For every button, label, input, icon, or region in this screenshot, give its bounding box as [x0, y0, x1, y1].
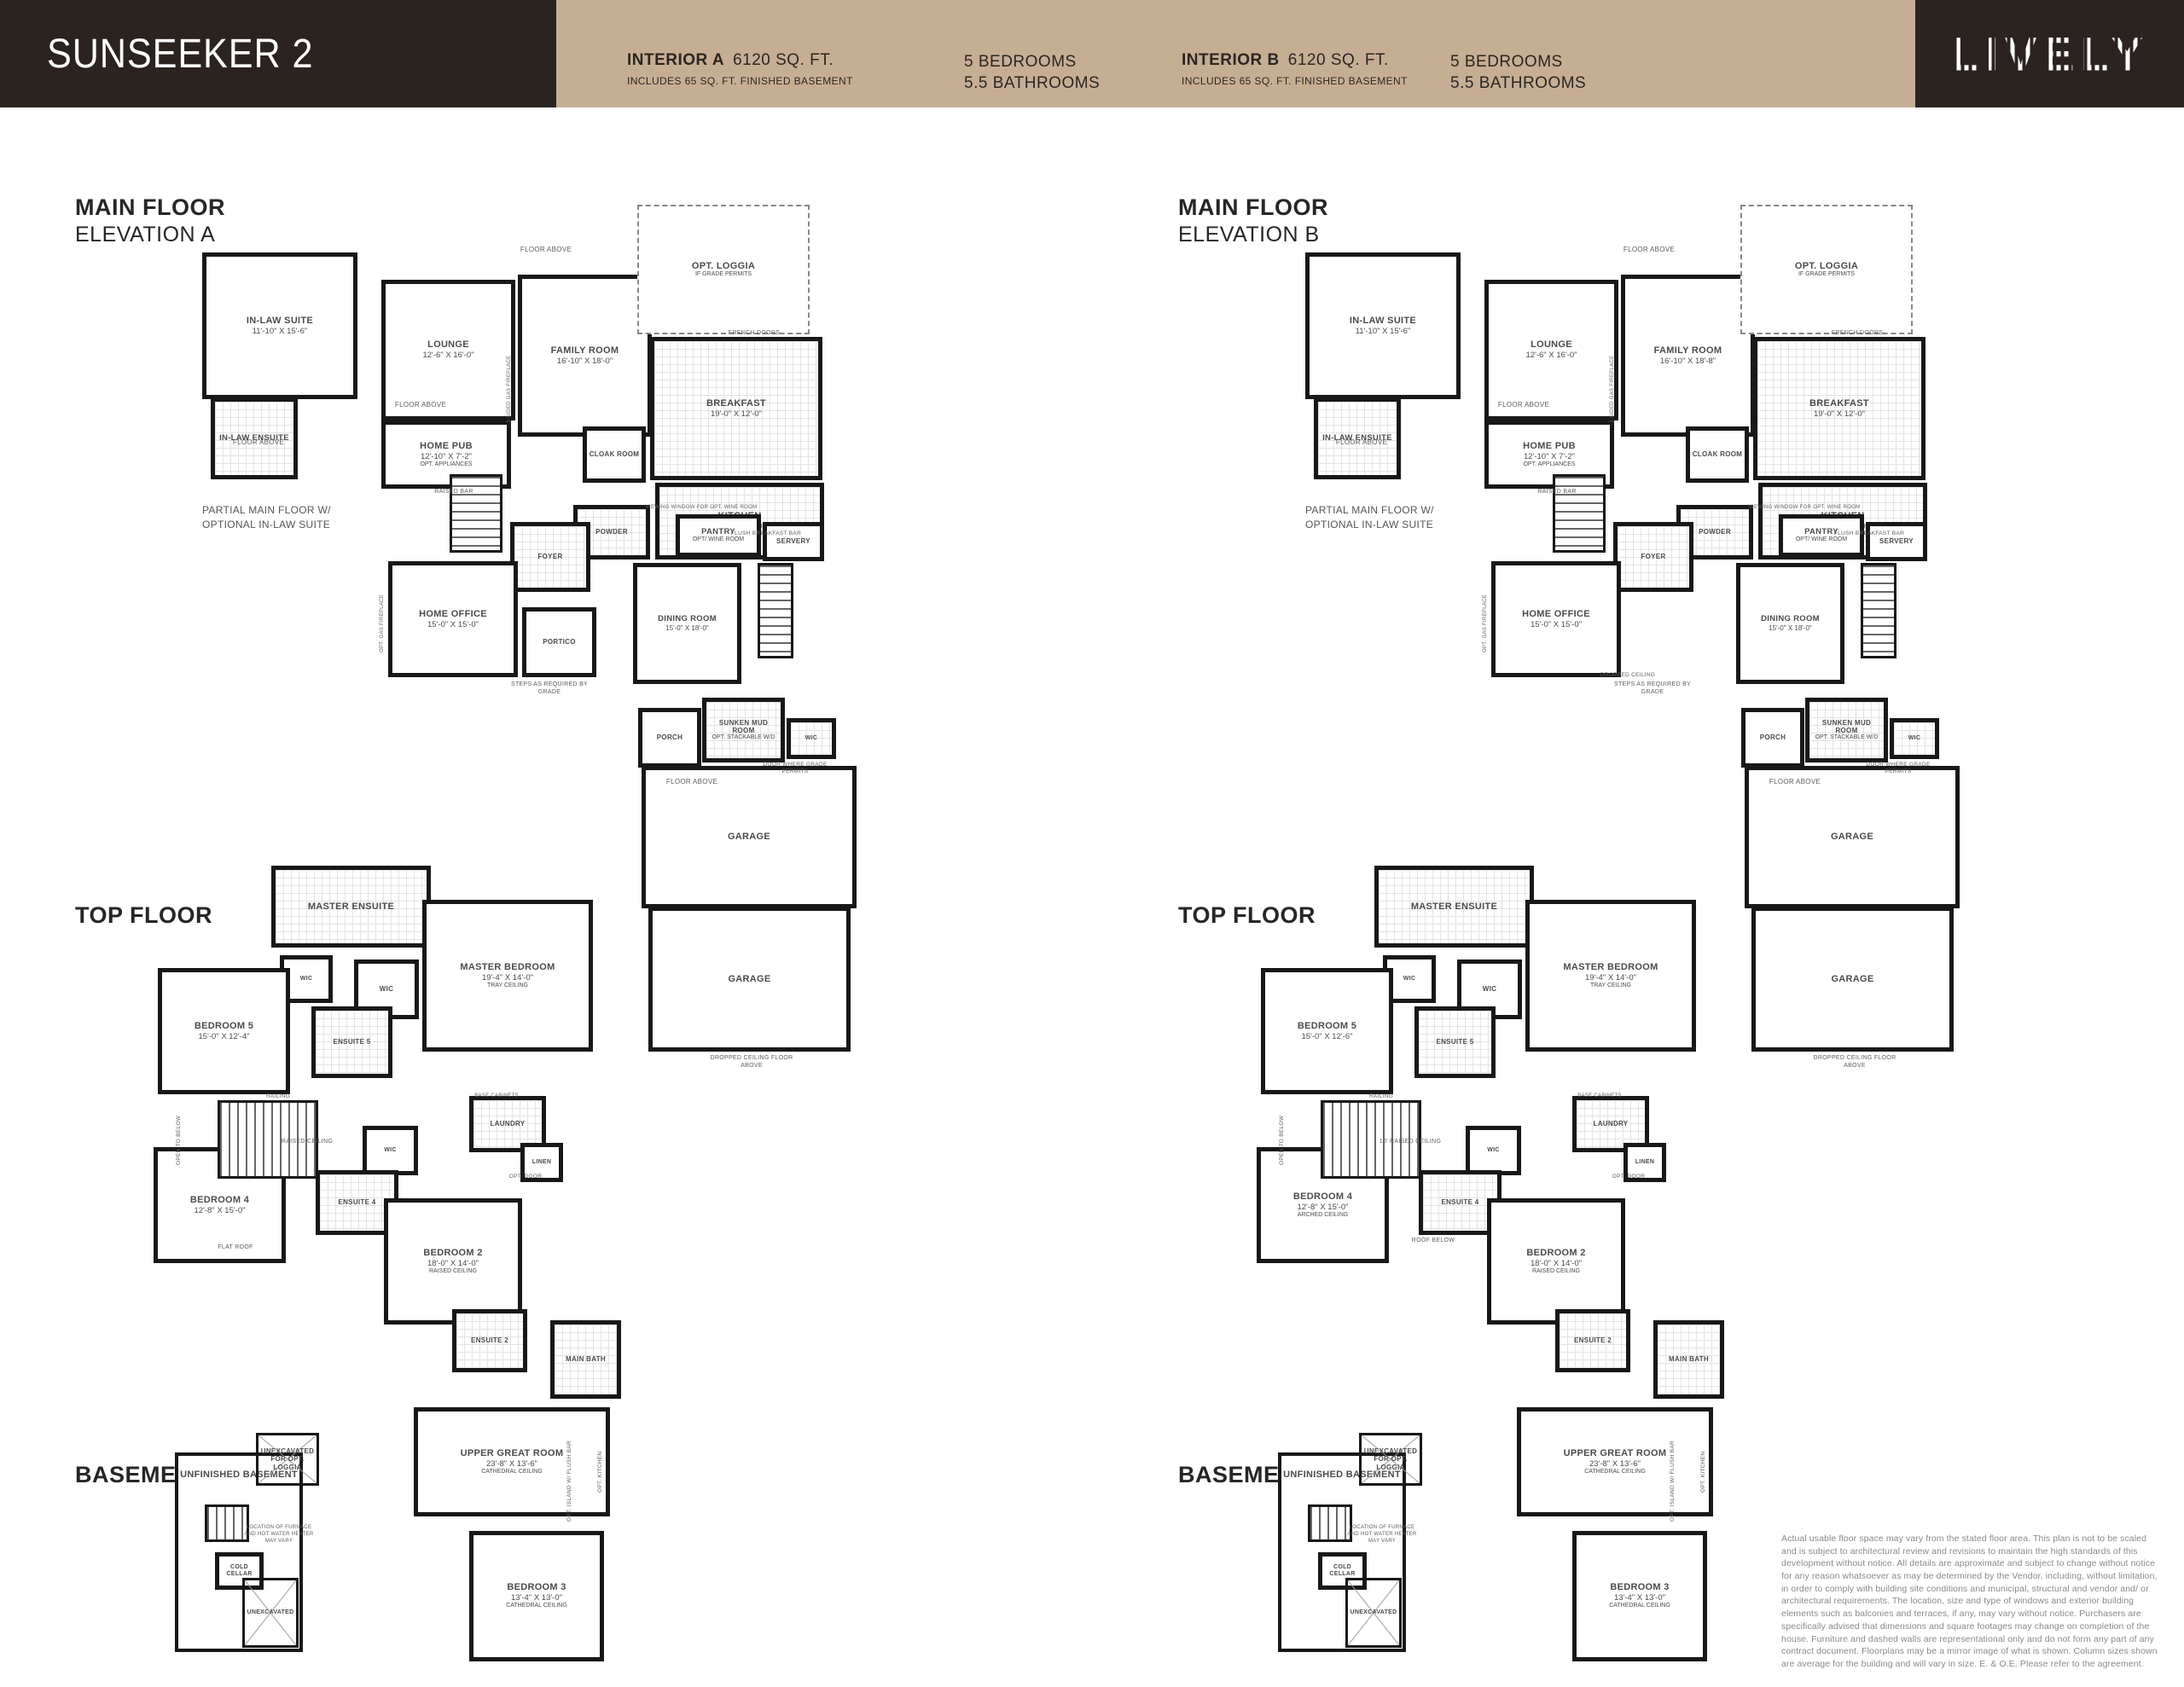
- room-dining: DINING ROOM15'-0" X 18'-0": [633, 563, 741, 684]
- room-bedroom3: BEDROOM 313'-4" X 13'-0"CATHEDRAL CEILIN…: [1572, 1531, 1707, 1661]
- room-label: HOME OFFICE: [419, 609, 487, 620]
- room-label: MAIN BATH: [1669, 1355, 1709, 1363]
- room-label: WIC: [805, 735, 818, 742]
- room-foyer: FOYER: [510, 522, 590, 592]
- room-family-a: FAMILY ROOM16'-10" X 18'-0": [518, 275, 652, 437]
- stairs: [450, 474, 502, 553]
- room-label: LAUNDRY: [491, 1120, 526, 1128]
- note-floor-above: FLOOR ABOVE: [386, 401, 456, 409]
- room-label: 23'-8" X 13'-6": [1589, 1459, 1641, 1469]
- room-label: UPPER GREAT ROOM: [1564, 1448, 1667, 1459]
- room-label: CLOAK ROOM: [1693, 450, 1743, 458]
- room-label: WIC: [380, 985, 393, 993]
- room-label: MASTER ENSUITE: [1411, 901, 1497, 913]
- room-label: HOME PUB: [1523, 441, 1576, 452]
- note-railing: RAILING: [1356, 1093, 1407, 1100]
- room-label: BREAKFAST: [1809, 398, 1869, 409]
- note-viewing: VIEWING WINDOW FOR OPT. WINE ROOM: [1748, 505, 1861, 512]
- room-label: TRAY CEILING: [1590, 983, 1631, 989]
- room-label: MASTER BEDROOM: [1563, 962, 1658, 973]
- room-label: BEDROOM 4: [190, 1195, 249, 1206]
- note-steps: STEPS AS REQUIRED BY GRADE: [502, 681, 597, 696]
- note-base-cabinets: BASE CABINETS: [1569, 1093, 1630, 1100]
- room-label: POWDER: [1699, 528, 1731, 536]
- room-label: RAISED CEILING: [429, 1268, 477, 1275]
- room-label: 23'-8" X 13'-6": [486, 1459, 537, 1469]
- interior-b-sqft: 6120 SQ. FT.: [1288, 51, 1389, 69]
- note-floor-above: FLOOR ABOVE: [224, 438, 293, 447]
- interior-a-label: INTERIOR A: [627, 51, 724, 69]
- partial-caption-a: PARTIAL MAIN FLOOR W/ OPTIONAL IN-LAW SU…: [202, 503, 386, 533]
- brand-logo: LIVELY: [1950, 26, 2149, 82]
- room-label: UNEXCAVATED FOR OPT. LOGGIA: [260, 1447, 315, 1471]
- note-floor-above: FLOOR ABOVE: [657, 778, 727, 786]
- room-wic: WIC: [1466, 1126, 1521, 1175]
- room-label: 12'-8" X 15'-0": [1297, 1203, 1348, 1212]
- room-label: 11'-10" X 15'-6": [1356, 327, 1411, 336]
- room-label: 12'-6" X 16'-0": [1525, 351, 1577, 360]
- interior-b-spec: INTERIOR B6120 SQ. FT. INCLUDES 65 SQ. F…: [1182, 51, 1408, 87]
- room-label: 12'-8" X 15'-0": [194, 1206, 245, 1215]
- room-label: UPPER GREAT ROOM: [461, 1448, 564, 1459]
- note-opt-door: OPT. DOOR: [502, 1174, 549, 1180]
- room-label: 15'-0" X 18'-0": [665, 624, 709, 633]
- room-label: CATHEDRAL CEILING: [506, 1603, 567, 1609]
- interior-a-baths: 5.5 BATHROOMS: [964, 72, 1100, 94]
- room-label: LINEN: [1635, 1159, 1655, 1166]
- room-label: BEDROOM 3: [507, 1582, 566, 1593]
- room-cloak: CLOAK ROOM: [1686, 426, 1749, 483]
- note-door-grade: DOOR WHERE GRADE PERMITS: [756, 762, 834, 776]
- room-label: 15'-0" X 15'-0": [427, 620, 479, 629]
- room-label: OPT. LOGGIA: [692, 261, 755, 272]
- room-label: BEDROOM 4: [1293, 1191, 1352, 1203]
- floorplan-sheet: SUNSEEKER 2 INTERIOR A6120 SQ. FT. INCLU…: [0, 0, 2184, 1687]
- note-floor-above: FLOOR ABOVE: [1760, 778, 1830, 786]
- header-specs-block: INTERIOR A6120 SQ. FT. INCLUDES 65 SQ. F…: [556, 0, 1915, 107]
- room-unexcavated-loggia: UNEXCAVATED FOR OPT. LOGGIA: [1359, 1433, 1422, 1486]
- room-garage: GARAGE: [1745, 766, 1960, 908]
- room-label: MASTER ENSUITE: [308, 901, 394, 913]
- room-label: 19'-4" X 14'-0": [1585, 973, 1636, 983]
- interior-a-includes: INCLUDES 65 SQ. FT. FINISHED BASEMENT: [627, 75, 853, 87]
- note-base-cabinets: BASE CABINETS: [466, 1093, 527, 1100]
- note-steps: STEPS AS REQUIRED BY GRADE: [1605, 681, 1700, 696]
- room-label: OPT. STACKABLE W/D: [712, 734, 775, 741]
- room-label: WIC: [300, 976, 313, 983]
- room-label: WIC: [384, 1147, 397, 1154]
- room-home-office: HOME OFFICE15'-0" X 15'-0": [388, 561, 518, 677]
- room-label: BEDROOM 5: [195, 1021, 253, 1032]
- room-label: GARAGE: [728, 974, 770, 985]
- room-label: ENSUITE 2: [1574, 1336, 1612, 1344]
- stairs: [1553, 474, 1606, 553]
- room-label: 15'-0" X 12'-6": [1301, 1032, 1352, 1041]
- stairs: [205, 1504, 249, 1542]
- note-dropped-floor: DROPPED CEILING FLOOR ABOVE: [700, 1054, 804, 1070]
- room-label: CATHEDRAL CEILING: [1609, 1603, 1670, 1609]
- room-label: OPT/ WINE ROOM: [693, 536, 744, 543]
- room-label: UNEXCAVATED FOR OPT. LOGGIA: [1363, 1447, 1418, 1471]
- room-label: ENSUITE 5: [1436, 1038, 1473, 1046]
- room-label: CATHEDRAL CEILING: [1584, 1469, 1646, 1475]
- room-label: OPT. LOGGIA: [1795, 261, 1858, 272]
- room-label: LAUNDRY: [1594, 1120, 1629, 1128]
- note-fireplace3: 3-SIDED GAS FIREPLACE: [507, 348, 514, 430]
- room-label: CATHEDRAL CEILING: [481, 1469, 543, 1475]
- interior-b-baths: 5.5 BATHROOMS: [1450, 72, 1586, 94]
- room-wic: WIC: [787, 718, 836, 759]
- room-label: OPT. STACKABLE W/D: [1815, 734, 1879, 741]
- room-label: WIC: [1403, 976, 1416, 983]
- room-label: IN-LAW SUITE: [1350, 316, 1416, 327]
- room-garage: GARAGE: [642, 766, 857, 908]
- room-servery: SERVERY: [763, 522, 824, 561]
- room-label: SUNKEN MUD ROOM: [708, 719, 779, 734]
- interior-b-beds: 5 BEDROOMS: [1450, 51, 1586, 72]
- note-flush-bar: FLUSH BREAKFAST BAR: [1809, 530, 1929, 537]
- room-label: 13'-4" X 13'-0": [1614, 1593, 1665, 1603]
- room-unexcavated: UNEXCAVATED: [1345, 1578, 1402, 1648]
- room-family-b: FAMILY ROOM16'-10" X 18'-8": [1621, 275, 1755, 437]
- header-right-block: LIVELY: [1915, 0, 2184, 107]
- room-label: MAIN BATH: [566, 1355, 606, 1363]
- room-wic: WIC: [1890, 718, 1939, 759]
- room-in-law-suite: IN-LAW SUITE11'-10" X 15'-6": [1305, 252, 1461, 399]
- room-in-law-suite: IN-LAW SUITE11'-10" X 15'-6": [202, 252, 357, 399]
- room-label: SUNKEN MUD ROOM: [1811, 719, 1882, 734]
- room-label: 12'-10" X 7'-2": [421, 452, 472, 461]
- room-label: 18'-0" X 14'-0": [427, 1259, 479, 1268]
- room-label: HOME OFFICE: [1522, 609, 1590, 620]
- room-breakfast: BREAKFAST19'-0" X 12'-0": [650, 337, 822, 480]
- room-label: COLD CELLAR: [1324, 1564, 1361, 1578]
- section-top-floor-a: TOP FLOOR: [75, 902, 212, 929]
- room-upper-great: UPPER GREAT ROOM23'-8" X 13'-6"CATHEDRAL…: [1517, 1407, 1713, 1516]
- room-label: HOME PUB: [420, 441, 473, 452]
- note-raised-ceiling: RAISED CEILING: [266, 1138, 348, 1145]
- room-label: PORTICO: [543, 638, 576, 646]
- room-label: BREAKFAST: [706, 398, 766, 409]
- model-name: SUNSEEKER 2: [47, 31, 313, 78]
- room-label: GARAGE: [1831, 974, 1873, 985]
- room-label: FOYER: [1641, 553, 1665, 560]
- room-lounge: LOUNGE12'-6" X 16'-0": [381, 280, 515, 420]
- header-left-block: SUNSEEKER 2: [0, 0, 556, 107]
- interior-b-label: INTERIOR B: [1182, 51, 1280, 69]
- room-label: 16'-10" X 18'-8": [1660, 357, 1716, 366]
- room-label: FOYER: [537, 553, 562, 560]
- room-label: COLD CELLAR: [221, 1564, 258, 1578]
- room-label: ENSUITE 4: [1441, 1198, 1478, 1206]
- room-label: 15'-0" X 15'-0": [1531, 620, 1582, 629]
- room-ensuite5: ENSUITE 5: [1414, 1006, 1496, 1078]
- note-french-doors: FRENCH DOORS: [1818, 329, 1896, 337]
- note-flush-bar: FLUSH BREAKFAST BAR: [706, 530, 826, 537]
- room-label: PORCH: [1760, 733, 1786, 741]
- interior-a-sqft: 6120 SQ. FT.: [733, 51, 834, 69]
- note-viewing: VIEWING WINDOW FOR OPT. WINE ROOM: [645, 505, 758, 512]
- partial-caption-b: PARTIAL MAIN FLOOR W/ OPTIONAL IN-LAW SU…: [1305, 503, 1489, 533]
- note-roof-below: ROOF BELOW: [1390, 1237, 1477, 1244]
- room-label: 13'-4" X 13'-0": [511, 1593, 562, 1603]
- room-bedroom5-a: BEDROOM 515'-0" X 12'-4": [158, 968, 290, 1094]
- room-label: 19'-0" X 12'-0": [711, 409, 762, 419]
- room-unexcavated-loggia: UNEXCAVATED FOR OPT. LOGGIA: [256, 1433, 319, 1486]
- note-furnace: LOCATION OF FURNACE AND HOT WATER HEATER…: [1347, 1525, 1417, 1545]
- stairs: [1861, 563, 1896, 658]
- note-floor-above: FLOOR ABOVE: [1611, 246, 1687, 254]
- room-cloak: CLOAK ROOM: [583, 426, 646, 483]
- room-label: IF GRADE PERMITS: [1798, 271, 1855, 278]
- note-raised-ceiling-b: 10' RAISED CEILING: [1369, 1138, 1451, 1145]
- room-ensuite2: ENSUITE 2: [452, 1309, 527, 1372]
- room-label: ENSUITE 5: [333, 1038, 370, 1046]
- room-unexcavated: UNEXCAVATED: [242, 1578, 299, 1648]
- room-label: LOUNGE: [427, 339, 469, 351]
- room-label: BEDROOM 2: [423, 1248, 482, 1259]
- room-label: DINING ROOM: [658, 615, 717, 624]
- room-garage: GARAGE: [648, 907, 851, 1052]
- note-raised-bar: RAISED BAR: [1523, 488, 1591, 496]
- room-label: WIC: [1483, 985, 1496, 993]
- section-main-floor-b: MAIN FLOOR ELEVATION B: [1178, 194, 1328, 247]
- note-floor-above: FLOOR ABOVE: [1489, 401, 1559, 409]
- room-label: GARAGE: [728, 832, 770, 843]
- room-label: 12'-6" X 16'-0": [422, 351, 473, 360]
- note-opt-fireplace: OPT. GAS FIREPLACE: [380, 587, 386, 660]
- room-ensuite2: ENSUITE 2: [1555, 1309, 1630, 1372]
- room-label: WIC: [1908, 735, 1921, 742]
- room-label: OPT. APPLIANCES: [1523, 461, 1575, 468]
- interior-b-includes: INCLUDES 65 SQ. FT. FINISHED BASEMENT: [1182, 75, 1408, 87]
- room-label: SERVERY: [776, 537, 810, 545]
- note-opt-island: OPT. ISLAND W/ FLUSH BAR: [566, 1440, 573, 1523]
- room-master-bedroom: MASTER BEDROOM19'-4" X 14'-0"TRAY CEILIN…: [1525, 900, 1696, 1052]
- room-home-office: HOME OFFICE15'-0" X 15'-0": [1491, 561, 1621, 677]
- header: SUNSEEKER 2 INTERIOR A6120 SQ. FT. INCLU…: [0, 0, 2184, 107]
- room-servery: SERVERY: [1866, 522, 1927, 561]
- room-upper-great: UPPER GREAT ROOM23'-8" X 13'-6"CATHEDRAL…: [414, 1407, 610, 1516]
- note-open-below: OPEN TO BELOW: [176, 1105, 183, 1175]
- room-master-ensuite: MASTER ENSUITE: [1374, 866, 1534, 948]
- room-label: BEDROOM 3: [1610, 1582, 1669, 1593]
- room-label: 18'-0" X 14'-0": [1531, 1259, 1582, 1268]
- room-label: TRAY CEILING: [487, 983, 528, 989]
- room-label: UNEXCAVATED: [1350, 1609, 1397, 1616]
- room-label: UNEXCAVATED: [247, 1609, 293, 1616]
- room-foyer: FOYER: [1613, 522, 1693, 592]
- room-label: PORCH: [657, 733, 682, 741]
- room-label: IN-LAW SUITE: [247, 316, 313, 327]
- room-label: ENSUITE 2: [471, 1336, 508, 1344]
- room-label: 16'-10" X 18'-0": [557, 357, 613, 366]
- note-french-doors: FRENCH DOORS: [715, 329, 793, 337]
- room-label: POWDER: [595, 528, 628, 536]
- note-door-grade: DOOR WHERE GRADE PERMITS: [1859, 762, 1937, 776]
- note-furnace: LOCATION OF FURNACE AND HOT WATER HEATER…: [244, 1525, 314, 1545]
- room-bedroom5-b: BEDROOM 515'-0" X 12'-6": [1261, 968, 1393, 1094]
- note-dropped-ceiling: DROPPED CEILING: [1581, 672, 1675, 679]
- room-label: MASTER BEDROOM: [460, 962, 555, 973]
- note-flat-roof: FLAT ROOF: [205, 1244, 266, 1251]
- note-floor-above: FLOOR ABOVE: [1327, 438, 1397, 447]
- note-railing: RAILING: [253, 1093, 304, 1100]
- room-bedroom2: BEDROOM 218'-0" X 14'-0"RAISED CEILING: [384, 1198, 522, 1325]
- room-ensuite5: ENSUITE 5: [311, 1006, 392, 1078]
- room-label: OPT/ WINE ROOM: [1796, 536, 1847, 543]
- room-breakfast: BREAKFAST19'-0" X 12'-0": [1753, 337, 1926, 480]
- room-label: 19'-0" X 12'-0": [1814, 409, 1865, 419]
- note-dropped-floor: DROPPED CEILING FLOOR ABOVE: [1803, 1054, 1907, 1070]
- room-garage: GARAGE: [1751, 907, 1954, 1052]
- room-mud: SUNKEN MUD ROOMOPT. STACKABLE W/D: [702, 698, 785, 762]
- interior-a-beds: 5 BEDROOMS: [964, 51, 1100, 72]
- room-label: DINING ROOM: [1761, 615, 1820, 624]
- note-opt-fireplace: OPT. GAS FIREPLACE: [1483, 587, 1490, 660]
- room-label: RAISED CEILING: [1532, 1268, 1580, 1275]
- section-top-floor-b: TOP FLOOR: [1178, 902, 1316, 929]
- note-opt-kitchen: OPT. KITCHEN: [597, 1435, 604, 1510]
- room-master-bedroom: MASTER BEDROOM19'-4" X 14'-0"TRAY CEILIN…: [422, 900, 593, 1052]
- room-label: SERVERY: [1879, 537, 1914, 545]
- room-loggia: OPT. LOGGIAIF GRADE PERMITS: [637, 205, 810, 334]
- room-main-bath: MAIN BATH: [550, 1320, 621, 1399]
- note-floor-above: FLOOR ABOVE: [508, 246, 584, 254]
- note-opt-island: OPT. ISLAND W/ FLUSH BAR: [1670, 1440, 1676, 1523]
- stairs: [758, 563, 793, 658]
- room-label: CLOAK ROOM: [590, 450, 640, 458]
- room-label: 19'-4" X 14'-0": [482, 973, 533, 983]
- room-label: 12'-10" X 7'-2": [1524, 452, 1575, 461]
- room-label: WIC: [1487, 1147, 1500, 1154]
- room-wic: WIC: [363, 1126, 418, 1175]
- room-loggia: OPT. LOGGIAIF GRADE PERMITS: [1740, 205, 1913, 334]
- room-main-bath: MAIN BATH: [1653, 1320, 1724, 1399]
- room-label: 15'-0" X 18'-0": [1769, 624, 1812, 633]
- room-master-ensuite: MASTER ENSUITE: [271, 866, 431, 948]
- interior-b-bedbath: 5 BEDROOMS 5.5 BATHROOMS: [1450, 51, 1586, 94]
- legal-disclaimer: Actual usable floor space may vary from …: [1781, 1533, 2163, 1671]
- room-portico: PORTICO: [522, 607, 596, 677]
- note-open-below: OPEN TO BELOW: [1279, 1105, 1286, 1175]
- stairs: [1308, 1504, 1352, 1542]
- room-label: 11'-10" X 15'-6": [253, 327, 308, 336]
- room-label: ENSUITE 4: [338, 1198, 375, 1206]
- interior-a-bedbath: 5 BEDROOMS 5.5 BATHROOMS: [964, 51, 1100, 94]
- room-lounge: LOUNGE12'-6" X 16'-0": [1484, 280, 1618, 420]
- room-porch: PORCH: [1741, 708, 1804, 768]
- note-raised-bar: RAISED BAR: [420, 488, 488, 496]
- room-bedroom3: BEDROOM 313'-4" X 13'-0"CATHEDRAL CEILIN…: [469, 1531, 604, 1661]
- section-main-floor-a: MAIN FLOOR ELEVATION A: [75, 194, 225, 247]
- room-label: FAMILY ROOM: [1654, 345, 1722, 357]
- room-label: LINEN: [532, 1159, 552, 1166]
- room-label: BEDROOM 5: [1298, 1021, 1356, 1032]
- note-fireplace3: 3-SIDED GAS FIREPLACE: [1610, 348, 1617, 430]
- room-dining: DINING ROOM15'-0" X 18'-0": [1736, 563, 1844, 684]
- room-label: GARAGE: [1831, 832, 1873, 843]
- room-label: IF GRADE PERMITS: [695, 271, 752, 278]
- room-bedroom2: BEDROOM 218'-0" X 14'-0"RAISED CEILING: [1487, 1198, 1625, 1325]
- note-opt-kitchen: OPT. KITCHEN: [1700, 1435, 1707, 1510]
- room-label: FAMILY ROOM: [551, 345, 619, 357]
- room-porch: PORCH: [638, 708, 701, 768]
- room-label: ARCHED CEILING: [1298, 1212, 1349, 1219]
- room-mud: SUNKEN MUD ROOMOPT. STACKABLE W/D: [1805, 698, 1888, 762]
- room-label: OPT. APPLIANCES: [420, 461, 472, 468]
- room-label: 15'-0" X 12'-4": [198, 1032, 249, 1041]
- room-label: LOUNGE: [1531, 339, 1572, 351]
- room-label: BEDROOM 2: [1526, 1248, 1585, 1259]
- interior-a-spec: INTERIOR A6120 SQ. FT. INCLUDES 65 SQ. F…: [627, 51, 853, 87]
- note-opt-door: OPT. DOOR: [1605, 1174, 1653, 1180]
